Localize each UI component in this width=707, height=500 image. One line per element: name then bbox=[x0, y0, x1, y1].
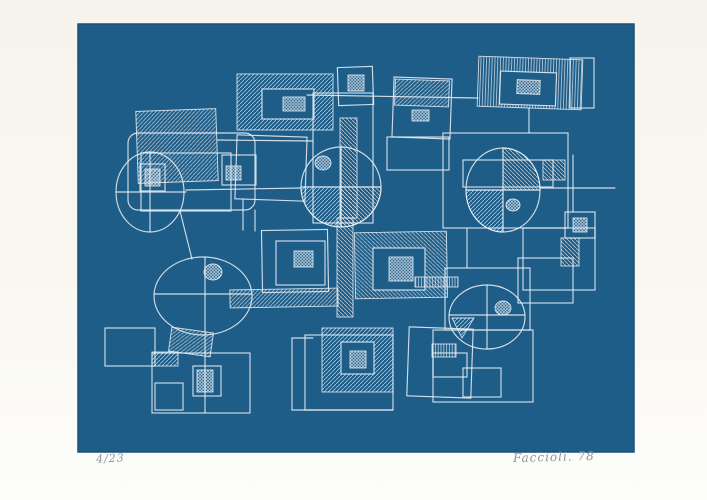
paper-sheet: 4/23 Faccioli. 78 bbox=[0, 0, 707, 500]
print-shape bbox=[412, 110, 429, 121]
print-shape bbox=[561, 238, 579, 266]
print-shape bbox=[415, 277, 458, 287]
print-shape bbox=[283, 97, 305, 111]
print-shape bbox=[517, 80, 540, 95]
print-shape bbox=[389, 257, 413, 281]
print-shape bbox=[315, 156, 331, 170]
print-shape bbox=[337, 218, 353, 317]
print-shape bbox=[348, 75, 364, 91]
print-shape bbox=[495, 301, 511, 315]
print-shape bbox=[204, 264, 222, 280]
print-shape bbox=[506, 199, 520, 211]
print-shape bbox=[294, 251, 313, 267]
print-shape bbox=[395, 79, 450, 107]
print-shape bbox=[230, 288, 338, 308]
artist-signature: Faccioli. 78 bbox=[513, 449, 595, 465]
print-shape bbox=[432, 344, 456, 357]
print-shape bbox=[573, 218, 587, 232]
print-shape bbox=[543, 160, 565, 180]
edition-number: 4/23 bbox=[96, 451, 125, 465]
print-shape bbox=[145, 169, 160, 186]
print-shape bbox=[152, 352, 178, 366]
print-shape bbox=[226, 166, 241, 180]
print-artwork-svg bbox=[0, 0, 707, 500]
print-shape bbox=[350, 351, 366, 368]
